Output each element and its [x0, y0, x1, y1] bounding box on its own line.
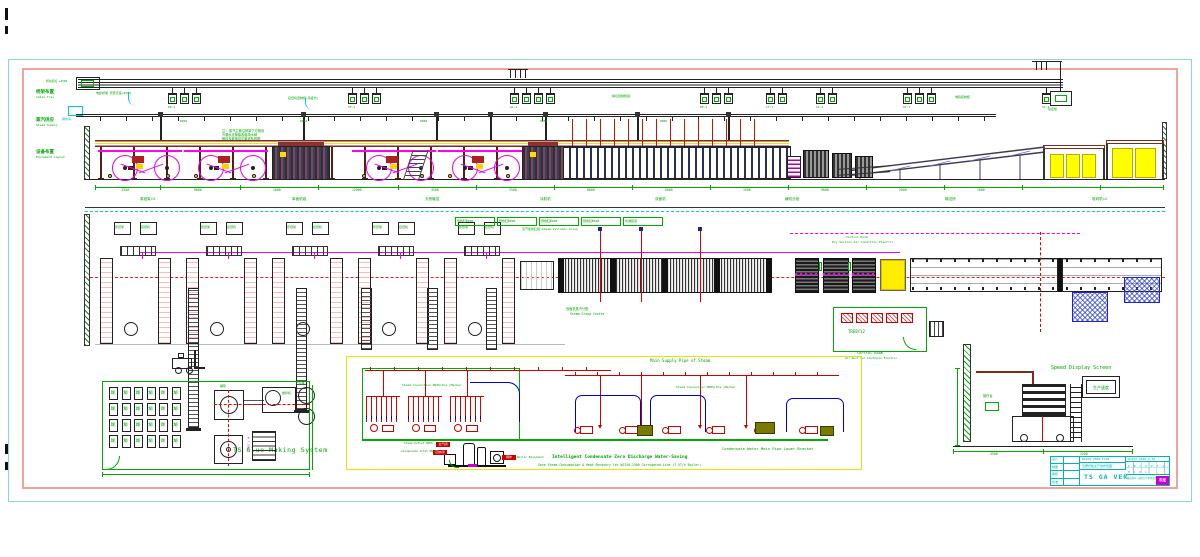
speed-wheel-2: [1056, 434, 1064, 442]
manifold-pump-c-2: [454, 424, 462, 432]
steam-hanger-568: [568, 117, 569, 121]
glue-tank-t-3-4: 糊: [161, 439, 165, 444]
slitter-mag-2: [852, 273, 876, 276]
elev-dim-10: 2000: [899, 189, 907, 193]
elev-dim-5: 2500: [509, 189, 517, 193]
elev-dim-1: 8000: [194, 189, 202, 193]
tray-riser1-v0: [510, 70, 511, 78]
tb-left-row-t-0: 设计: [1052, 458, 1058, 462]
elev-dim-tick-10: [866, 185, 867, 190]
tray-cabinet-inner-2-3: [548, 97, 553, 102]
speed-dim-1: 4500: [990, 453, 998, 457]
steam-hanger-516: [516, 117, 517, 121]
plan-red-dashed-v: [1040, 232, 1041, 332]
plan-stand-col-l-0: [100, 258, 113, 344]
tb-left-div-3: [1063, 479, 1064, 487]
branch-label-2: Steam Connection DN65(Dia.)Marker: [676, 386, 736, 390]
conveyor-ticks-top: [912, 259, 1156, 262]
heater-box-t-2: 预热缸Φ900: [541, 220, 557, 224]
stacker-roof-1: [1043, 145, 1105, 149]
elev-section-0: 原纸架×5: [140, 197, 155, 201]
speed-dim-vt1: [955, 368, 960, 369]
tb-left-row-t-3: 批准: [1052, 481, 1058, 485]
side-label-en-0: Cable Tray: [36, 96, 54, 100]
manifold-pump-r-2: [466, 425, 478, 432]
glue-tank-t-0-5: 糊: [174, 391, 178, 396]
elev-dim-7: 6000: [665, 189, 673, 193]
tb-left-div-0: [1063, 456, 1064, 464]
glue-tank-t-2-4: 糊: [161, 423, 165, 428]
hdr-tick-1: [394, 367, 395, 370]
steam-hanger-386: [386, 117, 387, 121]
tray-cluster-label-0: RS-1: [168, 106, 175, 110]
dry-end-machine-0: [803, 150, 829, 178]
manifold-pump-c-0: [370, 424, 378, 432]
slitter-gap-2: [848, 262, 851, 271]
stand-bar-1: [184, 150, 268, 152]
plan-stand-col-l-2: [272, 258, 285, 344]
glue-tank-t-3-3: 糊: [149, 439, 153, 444]
glue-tank-t-3-2: 糊: [136, 439, 140, 444]
glue-pump-label: 糊泵: [220, 385, 226, 389]
plan-mag-riser-3: [400, 252, 401, 259]
tray-cabinet-inner-1-0: [350, 97, 355, 102]
elev-dim-4: 4500: [431, 189, 439, 193]
hdr-tick-4: [466, 367, 467, 370]
steam-hanger-984: [984, 117, 985, 121]
olive-block-2: [820, 426, 834, 436]
df-sep-3: [714, 258, 720, 293]
df-sep-4: [766, 258, 772, 293]
speed-column: [963, 344, 971, 442]
manifold-pump-c-1: [412, 424, 420, 432]
glue-dim-v: [312, 385, 313, 470]
steam-hanger-828: [828, 117, 829, 121]
tray-cabinet-inner-0-0: [170, 97, 175, 102]
conveyor-ticks-bot: [912, 287, 1156, 290]
speed-plates: [1022, 384, 1066, 416]
plan-stand-circle-4: [468, 322, 482, 336]
red-main-right: [565, 375, 839, 376]
cr-label: Control Room: [857, 351, 883, 355]
plan-stand-circle-1: [210, 322, 224, 336]
elev-section-4: 双面机: [655, 197, 666, 201]
heater-caption: 蒸汽加热缸组 Steam Cylinder Group: [522, 228, 578, 232]
plan-standbox-l-t-4: 原纸架: [459, 226, 468, 230]
tray-cluster-label-1: SF-1: [348, 106, 355, 110]
tray-cluster-label-3: DF-1: [700, 106, 707, 110]
manifold-pump-r-1: [424, 425, 436, 432]
tray-cabinet-inner-6-2: [929, 97, 934, 102]
tray-cabinet-inner-6-0: [905, 97, 910, 102]
speed-dim-tick-2: [1132, 449, 1133, 454]
plan-standbox-r-t-0: 接纸机: [141, 226, 150, 230]
slitter-gap-1: [819, 262, 822, 271]
glue-tank-t-3-0: 糊: [111, 439, 115, 444]
steam-hanger-932: [932, 117, 933, 121]
stand-chip1-3: [476, 164, 483, 169]
fold-mark-0: [5, 8, 8, 20]
steam-hanger-906: [906, 117, 907, 121]
stand-dot2-1: [252, 174, 256, 178]
cond-pump-r-2: [668, 426, 681, 434]
plan-standbox-r-t-4: 接纸机: [485, 226, 494, 230]
plan-standbox-r-t-3: 接纸机: [399, 226, 408, 230]
glue-tank-t-2-3: 糊: [149, 423, 153, 428]
heater-box-t-0: 预热缸Φ900: [457, 220, 473, 224]
cr-stairs: [929, 321, 944, 337]
plan-mag-riser-4: [486, 252, 487, 259]
boiler-steam-out: Steam Outlet DN50: [404, 442, 433, 445]
elev-dim-9: 9000: [821, 189, 829, 193]
stand-splicer-1: [218, 156, 230, 163]
boiler-cond-in: Condensate Inlet DN40: [401, 450, 436, 453]
tray-cabinet-inner-6-1: [917, 97, 922, 102]
forklift-fork: [196, 367, 205, 369]
stand-dot1-2: [362, 174, 366, 178]
tb-bottom-note: 版权所有·未经许可不得复制: [1127, 478, 1157, 481]
manifold-blue-0: [366, 416, 400, 419]
cutoff-knife: [880, 259, 906, 291]
elev-dim-2: 1600: [273, 189, 281, 193]
plan-mag-pipe: [140, 252, 900, 253]
single-facer-1: [522, 146, 564, 180]
cond-pump-r-0: [580, 426, 593, 434]
tray-cabinet-inner-2-0: [512, 97, 517, 102]
side-label-en-2: Equipment Layout: [36, 156, 65, 160]
speed-display-inner: 生产速度: [1086, 380, 1116, 394]
steam-hanger-308: [308, 117, 309, 121]
olive-block-1: [755, 422, 775, 434]
stand-chip1-2: [390, 164, 397, 169]
heater-box-t-4: 喷淋装置: [625, 220, 637, 224]
df-blue-chip-0: [598, 227, 602, 231]
plan-stand-col-r-0: [158, 258, 171, 344]
tb-big: TS GA VER: [1084, 474, 1128, 482]
elev-dim-tick-1: [160, 185, 161, 190]
elev-dim-0: 2550: [122, 189, 130, 193]
blue-hatch-1: [1124, 277, 1160, 303]
stand-bar-3: [438, 150, 522, 152]
plan-stand-col-r-2: [330, 258, 343, 344]
elev-section-5: 横切分纸: [785, 197, 799, 201]
tray-cabinet-inner-4-1: [780, 97, 785, 102]
df-sep-1: [610, 258, 616, 293]
manifold-blue-1: [408, 416, 442, 419]
cr-cabinet-4: [901, 313, 913, 323]
hdr-tick-3: [442, 367, 443, 370]
manifold-pump-r-0: [382, 425, 394, 432]
cond-pump-r-3: [712, 426, 725, 434]
plan-mag-riser-1: [228, 252, 229, 259]
stacker-post-2: [1106, 144, 1108, 179]
steam-hanger-958: [958, 117, 959, 121]
red-vert-3: [746, 375, 747, 425]
tray-cluster-label-6: ST-1: [903, 106, 910, 110]
speed-base-center: [1042, 416, 1043, 442]
schematic-red-header: [365, 370, 611, 371]
elev-dim-tick-4: [398, 185, 399, 190]
elev-wall-left: [84, 126, 90, 180]
plan-splice-2: [292, 246, 328, 256]
rmr-tick-685: [685, 372, 686, 375]
plan-stand-col-r-1: [244, 258, 257, 344]
heater-box-t-3: 预热缸Φ600: [583, 220, 599, 224]
boiler-tank-1: [463, 443, 475, 466]
tray-riser1-v2: [520, 70, 521, 78]
plan-standbox-l-t-0: 原纸架: [115, 226, 124, 230]
steam-size-0: DN25: [180, 120, 187, 124]
tray-riser2-v1: [1041, 62, 1042, 70]
steam-size-1: DN32: [300, 120, 307, 124]
tray-riser2-drop: [1060, 61, 1061, 91]
steam-hanger-204: [204, 117, 205, 121]
tray-cabinet-inner-5-1: [830, 97, 835, 102]
cond-pump-r-5: [805, 426, 818, 434]
cr-mag-dashed: [790, 233, 1080, 234]
olive-block-0: [637, 425, 653, 436]
elev-section-3: 涂胶机: [540, 197, 551, 201]
glue-tank-t-2-1: 糊: [124, 423, 128, 428]
cable-tray-end-inner: [81, 80, 94, 87]
red-arrow-3: [744, 425, 748, 429]
glue-tank-t-1-2: 糊: [136, 407, 140, 412]
tb-doc-no: WJ250-2500-2-10: [1128, 458, 1155, 462]
stand-bar-0: [98, 150, 182, 152]
manifold-riser-0: [383, 371, 384, 396]
slitter-mag-0: [795, 273, 819, 276]
glue-tank-t-0-4: 糊: [161, 391, 165, 396]
glue-mixer-label: 搅拌机: [282, 392, 291, 396]
df-sep-0: [558, 258, 564, 293]
single-facer-top-1: [528, 142, 558, 146]
elev-dim-line: [95, 187, 1163, 188]
rmr-tick-707: [707, 372, 708, 375]
stand-dot1-3: [448, 174, 452, 178]
df-sep-2: [662, 258, 668, 293]
elev-dim-tick-13: [1100, 185, 1101, 190]
red-vert-1: [641, 375, 642, 425]
stacker-post-1: [1103, 149, 1105, 179]
tray-cluster-label-2: GL-1: [510, 106, 517, 110]
elev-section-2: 天桥输送: [425, 197, 439, 201]
glue-tank-t-0-2: 糊: [136, 391, 140, 396]
steam-hanger-230: [230, 117, 231, 121]
hatch-strip-3: [427, 288, 438, 350]
manifold-riser-2: [467, 371, 468, 396]
steam-size-3: DN50: [540, 120, 547, 124]
elev-dim-tick-2: [240, 185, 241, 190]
tray-cabinet-inner-3-0: [702, 97, 707, 102]
plan-splice-4: [464, 246, 500, 256]
plan-splice-1: [206, 246, 242, 256]
rmr-tick-619: [619, 372, 620, 375]
stand-dot2-0: [166, 174, 170, 178]
hdr-tick-0: [370, 367, 371, 370]
glue-machine-plan: [520, 261, 554, 290]
stand-dot2-3: [506, 174, 510, 178]
stacker-post-3: [1162, 144, 1164, 179]
hdr-tick-5: [490, 367, 491, 370]
df-red-riser-1: [641, 230, 642, 302]
glue-centerline-v: [228, 390, 229, 466]
steam-hanger-178: [178, 117, 179, 121]
plan-standbox-l-t-2: 原纸架: [287, 226, 296, 230]
tray-riser1-v1: [515, 70, 516, 78]
steam-main-line: [76, 114, 996, 117]
red-chip-2: 锅炉: [502, 455, 516, 460]
elev-dim-tick-5: [476, 185, 477, 190]
tb-row1: WJ250-2500-TSJR: [1082, 458, 1109, 462]
speed-dim-tick-1: [1043, 449, 1044, 454]
stand-dot1-1: [194, 174, 198, 178]
plan-rail-dashed: [85, 211, 1165, 212]
rmr-tick-751: [751, 372, 752, 375]
stand-roll-hub-0-1: [165, 166, 169, 170]
speed-ground: [953, 446, 1133, 447]
elev-dim-8: 1500: [743, 189, 751, 193]
yellow-stack-1-2: [1082, 154, 1096, 178]
tray-cabinet-inner-2-1: [524, 97, 529, 102]
elev-dim-6: 8000: [587, 189, 595, 193]
elev-dim-tick-12: [1022, 185, 1023, 190]
elev-dim-tick-0: [95, 185, 96, 190]
boiler-mach-2c: [493, 454, 501, 462]
glue-tank-t-2-0: 糊: [111, 423, 115, 428]
speed-pipe-h: [976, 371, 1034, 373]
riser-cabinet-label: 总控柜: [1048, 108, 1057, 112]
plan-wall-left: [84, 214, 90, 346]
stand-splicer-0: [132, 156, 144, 163]
cr-inside-label: TRE8Y12: [848, 330, 865, 335]
steam-hanger-256: [256, 117, 257, 121]
glue-stairs: [252, 431, 276, 461]
tray-riser1-v3: [525, 70, 526, 78]
df-label-2: Steam Group Center: [570, 313, 605, 317]
steam-hanger-464: [464, 117, 465, 121]
riser-cabinet-inner: [1055, 95, 1067, 102]
steam-hanger-334: [334, 117, 335, 121]
stand-chip1-0: [136, 164, 143, 169]
plan-standbox-l-t-3: 原纸架: [373, 226, 382, 230]
tray-note-3: 堆码控制柜: [955, 96, 970, 100]
hdr-tick-2: [418, 367, 419, 370]
fold-mark-1: [5, 26, 8, 34]
tray-cabinet-inner-4-0: [768, 97, 773, 102]
rmr-tick-729: [729, 372, 730, 375]
red-chip-0: 主汽阀: [436, 442, 450, 447]
rmr-tick-663: [663, 372, 664, 375]
plan-stand-circle-3: [382, 322, 396, 336]
double-facer: [563, 146, 791, 179]
glue-tank-t-0-3: 糊: [149, 391, 153, 396]
tray-cabinet-inner-1-2: [374, 97, 379, 102]
stand-roll-hub-1-1: [251, 166, 255, 170]
tray-cabinet-inner-0-2: [194, 97, 199, 102]
tray-cabinet-inner-3-1: [714, 97, 719, 102]
elev-dim-tick-11: [944, 185, 945, 190]
glue-tank-t-0-1: 糊: [124, 391, 128, 396]
glue-motor-label: M 7.5kW: [246, 437, 250, 450]
branch-label-1: Steam Connection DN25(Dia.)Marker: [402, 384, 462, 388]
stand-splicer-2: [386, 156, 398, 163]
hdr-tick-6: [514, 367, 515, 370]
glue-tank-t-1-3: 糊: [149, 407, 153, 412]
steam-hanger-880: [880, 117, 881, 121]
plan-splice-0: [120, 246, 156, 256]
blue-hatch-0: [1072, 292, 1108, 322]
glue-tank-t-1-5: 糊: [174, 407, 178, 412]
blue-arc-small: [470, 382, 520, 422]
glue-dim-t2: [309, 472, 310, 477]
df-blue-chip-1: [639, 227, 643, 231]
single-facer-chip-0: [280, 152, 286, 157]
cad-drawing-sheet: TS Glue Making System Speed Display Scre…: [0, 0, 1200, 557]
steam-hanger-776: [776, 117, 777, 121]
elev-dim-tick-6: [554, 185, 555, 190]
boiler-mag-chip: [468, 464, 477, 467]
steam-hanger-802: [802, 117, 803, 121]
elev-dim-tick-14: [1163, 185, 1164, 190]
plan-standbox-r-t-2: 接纸机: [313, 226, 322, 230]
forklift-wheel-2: [186, 367, 193, 374]
steam-hanger-438: [438, 117, 439, 121]
yellow-stack-1-1: [1066, 154, 1080, 178]
cable-tray: [78, 79, 1063, 88]
boiler-tank-2: [477, 447, 486, 466]
yellow-stack-2-0: [1112, 148, 1133, 178]
stacker-post-0: [1043, 149, 1045, 179]
df-blue-chip-2: [698, 227, 702, 231]
tb-revs: A B C D E F G H J K L: [1128, 464, 1170, 475]
tray-cabinet-inner-7-0: [1044, 97, 1049, 102]
tray-note-0: 电缆桥架 安装高度+4500: [96, 92, 131, 96]
tray-cabinet-inner-0-1: [182, 97, 187, 102]
speed-dim-v: [957, 368, 958, 446]
glue-sq1-circle: [220, 396, 238, 414]
glue-tank-t-3-5: 糊: [174, 439, 178, 444]
tray-riser2-v2: [1046, 62, 1047, 70]
single-facer-chip-1: [530, 152, 536, 157]
df-red-riser-0: [600, 230, 601, 302]
forklift-seat: [178, 353, 184, 358]
steam-hanger-126: [126, 117, 127, 121]
slitter-mag-1: [823, 273, 849, 276]
tb-left-row-t-2: 审核: [1052, 473, 1058, 477]
glue-tank-t-3-1: 糊: [124, 439, 128, 444]
elev-dim-3: 12000: [352, 189, 362, 193]
speed-dim-tick-0: [953, 449, 954, 454]
cr-cabinet-1: [856, 313, 868, 323]
tray-cluster-label-4: CT-1: [766, 106, 773, 110]
tb-left-div-1: [1063, 464, 1064, 472]
rmr-tick-575: [575, 372, 576, 375]
rmr-tick-773: [773, 372, 774, 375]
glue-tank-t-2-2: 糊: [136, 423, 140, 428]
tray-cabinet-inner-2-2: [536, 97, 541, 102]
hdr-tick-7: [538, 367, 539, 370]
plan-mag-riser-0: [142, 252, 143, 259]
stand-roll-hub-3-1: [505, 166, 509, 170]
plan-mag-riser-2: [314, 252, 315, 259]
tray-cabinet-inner-3-2: [726, 97, 731, 102]
glue-machine-elev: [787, 156, 801, 178]
glue-tank-t-1-0: 糊: [111, 407, 115, 412]
rmr-tick-597: [597, 372, 598, 375]
yellow-stack-1-0: [1050, 154, 1064, 178]
plan-stand-col-r-4: [502, 258, 515, 344]
hatch-strip-2: [361, 288, 372, 350]
